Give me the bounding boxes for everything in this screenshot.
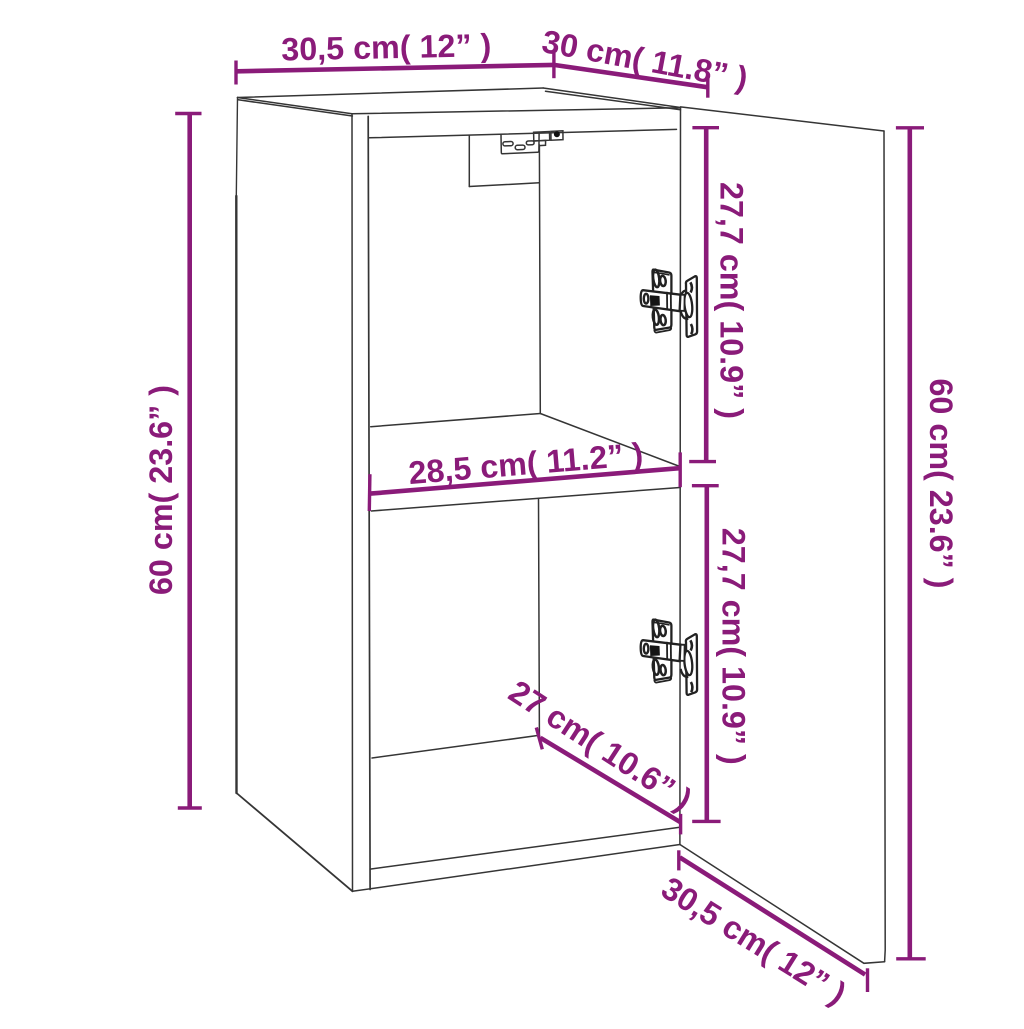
svg-text:27,7 cm( 10.9” ): 27,7 cm( 10.9” ) <box>716 528 752 765</box>
svg-text:30,5 cm( 12” ): 30,5 cm( 12” ) <box>281 27 492 67</box>
svg-text:60 cm( 23.6” ): 60 cm( 23.6” ) <box>143 385 179 595</box>
svg-text:27,7 cm( 10.9” ): 27,7 cm( 10.9” ) <box>714 182 750 419</box>
svg-text:60 cm( 23.6” ): 60 cm( 23.6” ) <box>923 378 959 588</box>
